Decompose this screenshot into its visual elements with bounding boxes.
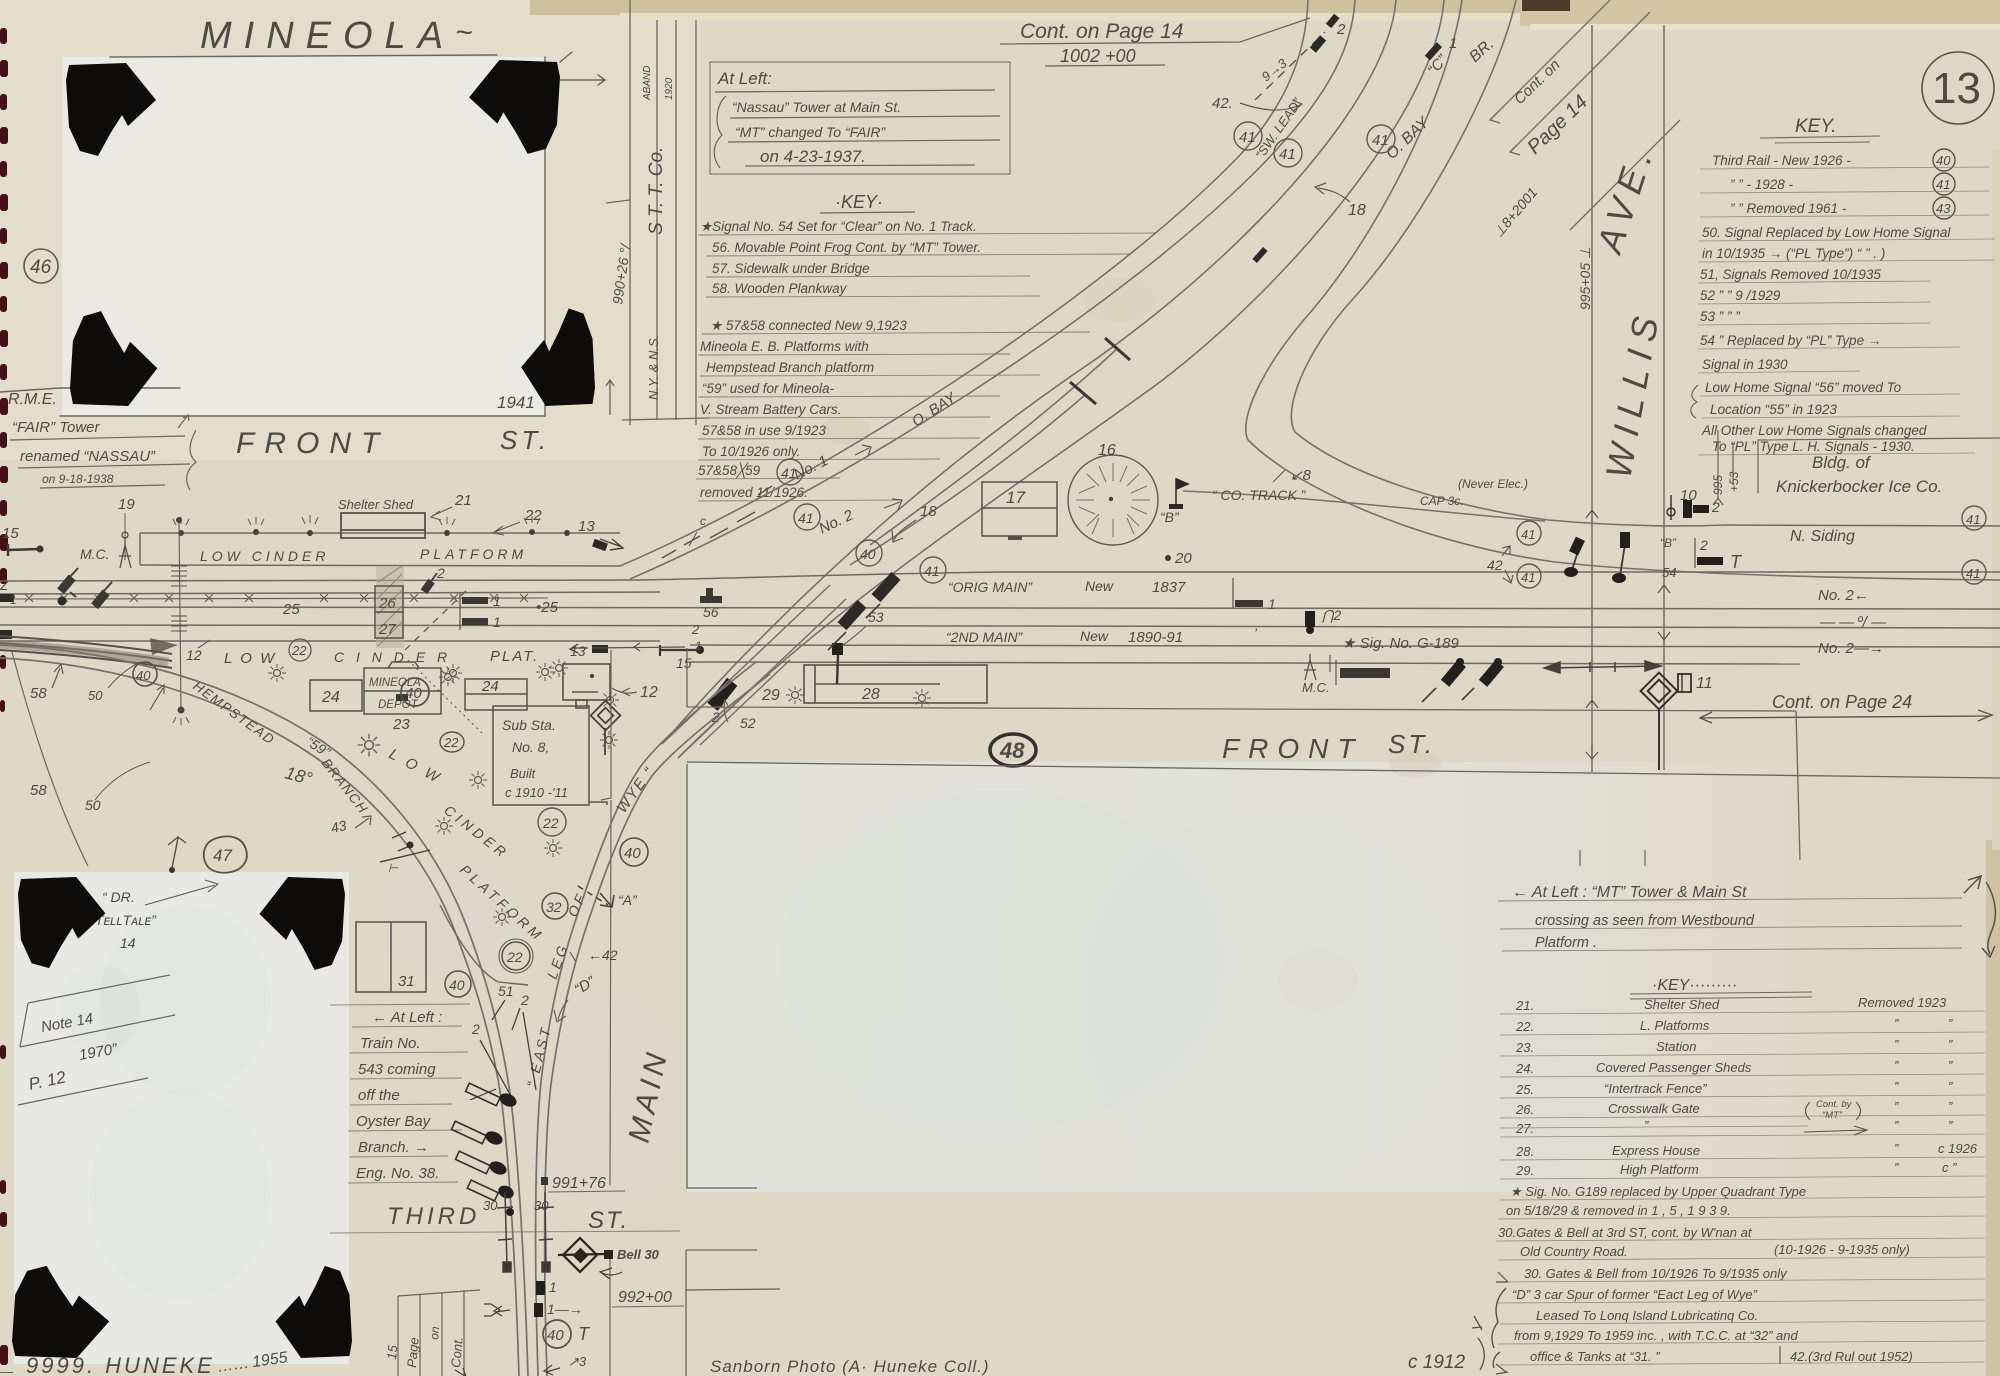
svg-text:58: 58 (30, 782, 47, 799)
svg-text:“ CO. TRACK ”: “ CO. TRACK ” (1212, 487, 1307, 503)
svg-text:⋂2: ⋂2 (1322, 607, 1341, 623)
svg-text:40: 40 (449, 977, 465, 993)
svg-text:LOW CINDER: LOW CINDER (200, 548, 329, 564)
svg-text:L O W: L O W (224, 650, 276, 667)
svg-text:↗3: ↗3 (568, 1354, 587, 1369)
svg-text:25.: 25. (1515, 1082, 1534, 1097)
svg-text:29: 29 (761, 687, 780, 704)
svg-text:Train No.: Train No. (360, 1035, 421, 1052)
svg-text:+53: +53 (1727, 471, 1741, 492)
svg-text:New: New (1085, 578, 1114, 594)
svg-text:No. 8,: No. 8, (512, 739, 549, 755)
svg-text:Location “55” in 1923: Location “55” in 1923 (1710, 402, 1837, 417)
svg-text:2: 2 (691, 622, 700, 637)
svg-text:off the: off the (358, 1087, 400, 1104)
svg-text:Bell 30: Bell 30 (617, 1247, 660, 1262)
svg-text:(Never Elec.): (Never Elec.) (1458, 477, 1528, 491)
svg-text:Covered Passenger Sheds: Covered Passenger Sheds (1596, 1060, 1752, 1075)
svg-text:Eng. No. 38.: Eng. No. 38. (356, 1165, 439, 1182)
svg-text:22: 22 (506, 949, 523, 965)
svg-text:”: ” (1948, 1058, 1953, 1073)
svg-text:1: 1 (493, 593, 501, 609)
svg-text:Signal in 1930: Signal in 1930 (1702, 357, 1788, 372)
svg-text:40: 40 (860, 546, 876, 562)
svg-text:MINEOLA: MINEOLA (200, 15, 455, 57)
svg-text:on 4-23-1937.: on 4-23-1937. (760, 147, 866, 166)
svg-text:40: 40 (405, 685, 422, 702)
svg-text:1941: 1941 (497, 393, 535, 412)
svg-text:office & Tanks at “31. ”: office & Tanks at “31. ” (1530, 1349, 1660, 1364)
svg-text:50. Signal Replaced by Low: 50. Signal Replaced by Low Home Signal (1702, 225, 1951, 240)
svg-text:32: 32 (546, 899, 562, 915)
svg-text:”: ” (1894, 1141, 1899, 1156)
svg-text:23: 23 (392, 716, 410, 733)
svg-text:2: 2 (1711, 499, 1720, 515)
svg-text:⊢: ⊢ (388, 861, 399, 875)
svg-text:56: 56 (703, 604, 719, 620)
svg-text:22: 22 (291, 643, 307, 658)
svg-text:“D” 3 car Spur of former “: “D” 3 car Spur of former “Eact Leg of Wy… (1512, 1287, 1758, 1302)
svg-text:“Intertrack Fence”: “Intertrack Fence” (1604, 1081, 1707, 1096)
svg-text:53 ” ”: 53 ” ” ” (1700, 309, 1740, 324)
svg-text:CAP 3c.: CAP 3c. (1420, 494, 1464, 508)
svg-text:58. Wooden Plankway: 58. Wooden Plankway (712, 281, 848, 296)
svg-text:43: 43 (1936, 201, 1951, 216)
svg-text:1837: 1837 (1152, 579, 1186, 596)
svg-text:★ Sig. No. G-189: ★ Sig. No. G-189 (1342, 635, 1459, 652)
svg-text:Crosswalk Gate: Crosswalk Gate (1608, 1101, 1700, 1116)
svg-text:1002 +00: 1002 +00 (1060, 46, 1136, 66)
svg-text:41: 41 (924, 563, 940, 579)
svg-text:9999. HUNEKE: 9999. HUNEKE (26, 1353, 215, 1376)
svg-text:←42: ←42 (588, 947, 618, 963)
svg-text:2: 2 (471, 1021, 480, 1037)
svg-text:”: ” (1894, 1079, 1899, 1094)
svg-text:·KEY·: ·KEY· (835, 192, 883, 212)
svg-text:1: 1 (1449, 35, 1457, 52)
svg-text:from 9,1929 To 1959 inc. ,: from 9,1929 To 1959 inc. , with T.C.C. a… (1514, 1328, 1799, 1343)
svg-text:— — º/ —: — — º/ — (1819, 614, 1887, 631)
svg-text:57&58 in use 9/1923: 57&58 in use 9/1923 (702, 423, 826, 438)
svg-text:14: 14 (120, 935, 136, 951)
svg-text:51: 51 (498, 983, 514, 999)
svg-text:removed 11/1926.: removed 11/1926. (700, 485, 808, 500)
svg-text:(10-1926 - 9-1935 only): (10-1926 - 9-1935 only) (1774, 1242, 1910, 1257)
svg-text:31: 31 (398, 973, 415, 990)
svg-text:53: 53 (868, 609, 884, 625)
svg-text:”: ” (1948, 1099, 1953, 1114)
svg-text:26: 26 (378, 595, 396, 612)
svg-text:Cont.: Cont. (448, 1336, 466, 1368)
svg-text:12: 12 (640, 684, 658, 701)
svg-text:Third Rail - New 1926 -: Third Rail - New 1926 - (1712, 153, 1851, 168)
svg-text:c: c (700, 514, 706, 528)
svg-text:Z: Z (0, 578, 9, 593)
svg-text:41: 41 (781, 465, 797, 481)
svg-text:Branch. →: Branch. → (358, 1139, 429, 1156)
svg-text:41: 41 (1521, 527, 1535, 542)
svg-text:995+05 ⊥: 995+05 ⊥ (1577, 247, 1593, 310)
svg-text:21: 21 (454, 492, 472, 509)
svg-text:51, Signals Removed: 51, Signals Removed 10/1935 (1700, 267, 1881, 282)
svg-text:c 1926: c 1926 (1938, 1141, 1978, 1156)
svg-text:42: 42 (1487, 557, 1503, 573)
svg-text:”: ” (1948, 1118, 1953, 1133)
svg-text:” ” - 1928 -: ” ” - 1928 - (1730, 177, 1794, 192)
svg-text:2: 2 (520, 992, 529, 1008)
svg-text:47: 47 (213, 846, 232, 865)
svg-text:”: ” (1894, 1037, 1899, 1052)
svg-text:41: 41 (1279, 146, 1296, 163)
svg-text:40: 40 (624, 845, 641, 862)
svg-text:40: 40 (136, 668, 151, 683)
svg-text:41: 41 (1966, 512, 1980, 527)
svg-text:ST.: ST. (500, 425, 550, 455)
svg-text:22: 22 (542, 815, 559, 831)
svg-text:At Left:: At Left: (717, 69, 772, 88)
svg-text:21.: 21. (1515, 998, 1534, 1013)
svg-text:25: 25 (282, 601, 300, 618)
svg-text:56. Movable Point Frog: 56. Movable Point Frog Cont. by “MT” Tow… (712, 240, 981, 255)
svg-text:1890-91: 1890-91 (1128, 629, 1183, 646)
svg-text:22: 22 (443, 735, 459, 750)
svg-text:★ Sig. No. G189 replaced by: ★ Sig. No. G189 replaced by Upper Quadra… (1510, 1184, 1806, 1199)
svg-text:“Nassau” Tower at Main St.: “Nassau” Tower at Main St. (732, 99, 901, 115)
svg-text:↙8: ↙8 (1290, 467, 1312, 484)
svg-text:26.: 26. (1515, 1102, 1534, 1117)
svg-text:Platform .: Platform . (1535, 935, 1597, 951)
svg-text:41: 41 (1372, 132, 1389, 149)
svg-text:30.Gates & Bell at 3rd ST,: 30.Gates & Bell at 3rd ST, cont. by W'na… (1498, 1225, 1753, 1240)
svg-text:“B”: “B” (1160, 509, 1180, 525)
svg-text:”: ” (1894, 1099, 1899, 1114)
svg-text:22.: 22. (1515, 1019, 1534, 1034)
svg-text:ST.: ST. (1388, 729, 1435, 759)
svg-text:—: — (0, 1364, 14, 1376)
svg-text:Oyster Bay: Oyster Bay (356, 1113, 432, 1130)
svg-text:c 1912: c 1912 (1408, 1352, 1465, 1373)
svg-text:2: 2 (1699, 537, 1708, 553)
svg-text:29.: 29. (1515, 1163, 1534, 1178)
svg-text:11: 11 (1696, 675, 1713, 692)
svg-text:“2ND MAIN”: “2ND MAIN” (946, 629, 1024, 645)
svg-text:41: 41 (1239, 129, 1256, 146)
svg-text:High Platform: High Platform (1620, 1162, 1699, 1177)
svg-text:2: 2 (1336, 21, 1346, 38)
svg-text:30: 30 (534, 1198, 549, 1213)
svg-text:PLAT.: PLAT. (490, 648, 539, 665)
svg-text:To “PL” Type L. H. Signals -: To “PL” Type L. H. Signals - 1930. (1712, 439, 1915, 454)
svg-text:24: 24 (481, 678, 499, 695)
svg-text:41: 41 (1966, 566, 1980, 581)
svg-text:30: 30 (483, 1198, 498, 1213)
svg-text:“ DR.: “ DR. (102, 889, 135, 905)
svg-text:50: 50 (85, 797, 101, 813)
svg-text:57. Sidewalk under Bridge: 57. Sidewalk under Bridge (712, 261, 870, 276)
svg-text:54: 54 (1662, 565, 1676, 580)
svg-text:543 coming: 543 coming (358, 1061, 436, 1078)
svg-text:c 1910 -'11: c 1910 -'11 (505, 785, 568, 800)
svg-text:N. Siding: N. Siding (1790, 528, 1855, 545)
svg-text:13: 13 (578, 518, 595, 535)
svg-text:2: 2 (436, 565, 445, 581)
svg-text:crossing as seen from: crossing as seen from Westbound (1535, 913, 1755, 929)
svg-text:Shelter Shed: Shelter Shed (338, 497, 414, 512)
svg-text:30. Gates & Bell from 10/1: 30. Gates & Bell from 10/1926 To 9/1935 … (1524, 1266, 1788, 1281)
svg-text:58: 58 (30, 685, 47, 702)
svg-text:48: 48 (999, 738, 1025, 763)
svg-text:~: ~ (455, 16, 473, 49)
svg-text:18: 18 (1348, 202, 1366, 219)
svg-text:41: 41 (1936, 177, 1950, 192)
svg-text:Sanborn Photo (A· Huneke Co: Sanborn Photo (A· Huneke Coll.) (710, 1357, 990, 1376)
svg-text:Cont. on Page 14: Cont. on Page 14 (1020, 20, 1183, 43)
svg-text:46: 46 (30, 257, 52, 278)
svg-text:ABAND: ABAND (642, 66, 653, 101)
svg-text:ST.: ST. (588, 1207, 629, 1234)
svg-text:Low Home Signal “56” moved To: Low Home Signal “56” moved To (1705, 380, 1902, 395)
svg-text:★Signal No. 54 Set for “C: ★Signal No. 54 Set for “Clear” on No. 1 … (700, 219, 977, 234)
svg-text:23.: 23. (1515, 1040, 1534, 1055)
svg-text:1920: 1920 (664, 77, 675, 100)
svg-text:40: 40 (1936, 153, 1951, 168)
svg-text:1: 1 (493, 614, 501, 630)
svg-text:Cont. by: Cont. by (1816, 1099, 1853, 1110)
svg-text:,: , (1255, 618, 1259, 633)
svg-text:41: 41 (798, 510, 814, 526)
svg-text:28: 28 (861, 686, 880, 703)
svg-text:Cont. on Page 24: Cont. on Page 24 (1772, 692, 1912, 712)
svg-text:”: ” (1948, 1037, 1953, 1052)
svg-text:on: on (427, 1325, 442, 1340)
svg-text:Bldg. of: Bldg. of (1812, 453, 1872, 472)
svg-text:”: ” (1894, 1160, 1899, 1175)
svg-text:22: 22 (524, 507, 542, 524)
svg-text:27: 27 (378, 621, 396, 638)
svg-text:16: 16 (1098, 442, 1116, 459)
svg-text:”: ” (1644, 1118, 1649, 1133)
svg-text:Hempstead Branch platform: Hempstead Branch platform (706, 360, 874, 375)
svg-text:13: 13 (1932, 64, 1981, 113)
svg-text:15: 15 (384, 1344, 400, 1360)
svg-text:KEY.: KEY. (1795, 116, 1837, 137)
svg-text:•25: •25 (536, 599, 559, 616)
svg-text:12: 12 (186, 647, 202, 663)
svg-text:TᴇʟʟTᴀʟᴇ”: TᴇʟʟTᴀʟᴇ” (95, 912, 157, 928)
svg-text:on 9-18-1938: on 9-18-1938 (42, 472, 114, 486)
svg-text:Page: Page (404, 1337, 422, 1369)
svg-text:41: 41 (1521, 570, 1535, 585)
svg-text:54 ” Replaced by: 54 ” Replaced by “PL” Type → (1700, 333, 1881, 348)
svg-text:No. 2←: No. 2← (1818, 587, 1869, 604)
svg-text:M.C.: M.C. (1302, 680, 1329, 695)
svg-text:24: 24 (321, 689, 340, 706)
svg-text:24.: 24. (1515, 1061, 1534, 1076)
svg-text:15: 15 (2, 525, 19, 542)
svg-text:Mineola E. B. Platforms w: Mineola E. B. Platforms with (700, 339, 869, 354)
svg-text:Shelter Shed: Shelter Shed (1644, 997, 1720, 1012)
svg-text:40: 40 (547, 1327, 564, 1344)
svg-text:Express House: Express House (1612, 1143, 1700, 1158)
svg-text:28.: 28. (1515, 1144, 1534, 1159)
svg-text:S T. T. Co.: S T. T. Co. (646, 147, 667, 235)
svg-text:27.: 27. (1515, 1121, 1534, 1136)
svg-text:Built: Built (510, 766, 537, 781)
svg-text:Old Country Road.: Old Country Road. (1520, 1244, 1628, 1259)
svg-text:“59” used for Mineola-: “59” used for Mineola- (702, 381, 835, 396)
svg-text:”: ” (1894, 1058, 1899, 1073)
svg-text:1: 1 (1268, 596, 1276, 612)
svg-text:on 5/18/29 & removed in 1 ,: on 5/18/29 & removed in 1 , 5 , 1 9 3 9. (1506, 1203, 1731, 1218)
svg-text:992+00: 992+00 (618, 1289, 672, 1306)
svg-text:All Other Low Home Signals cha: All Other Low Home Signals changed (1701, 423, 1927, 438)
svg-text:”: ” (1894, 1118, 1899, 1133)
svg-text:FRONT: FRONT (236, 427, 389, 460)
svg-text:Leased To Lonq Island L: Leased To Lonq Island Lubricatinq Co. (1536, 1308, 1758, 1323)
svg-text:57&58╳59: 57&58╳59 (698, 462, 761, 479)
svg-text:“ORIG MAIN”: “ORIG MAIN” (948, 579, 1033, 595)
svg-text:” ” Removed 1961 -: ” ” Removed 1961 - (1730, 201, 1847, 216)
svg-text:“A”: “A” (618, 892, 638, 908)
svg-text:“MT” changed To “FAIR”: “MT” changed To “FAIR” (735, 124, 886, 140)
svg-text:15: 15 (676, 655, 692, 671)
svg-text:Sub Sta.: Sub Sta. (502, 717, 556, 733)
svg-text:M.C.: M.C. (80, 546, 110, 562)
svg-text:To 10/1926 only.: To 10/1926 only. (702, 444, 800, 459)
svg-text:★ 57&58 connected New 9,: ★ 57&58 connected New 9,1923 (710, 318, 907, 333)
svg-text:·KEY·········: ·KEY········· (1652, 977, 1737, 994)
svg-text:New: New (1080, 628, 1109, 644)
svg-text:V. Stream Battery Cars.: V. Stream Battery Cars. (700, 402, 842, 417)
svg-text:13: 13 (570, 643, 586, 659)
svg-text:“FAIR” Tower: “FAIR” Tower (12, 419, 101, 436)
svg-text:Removed 1923: Removed 1923 (1858, 995, 1947, 1010)
svg-text:in 10/1935 → (“PL Type”) “: in 10/1935 → (“PL Type”) “ ” . ) (1702, 246, 1885, 261)
svg-text:20: 20 (1174, 550, 1192, 567)
svg-text:42.: 42. (1212, 95, 1233, 112)
svg-text:Station: Station (1656, 1039, 1696, 1054)
svg-text:42.(3rd Rul out 1952): 42.(3rd Rul out 1952) (1790, 1349, 1913, 1364)
svg-text:1: 1 (695, 639, 702, 653)
svg-text:1: 1 (549, 1279, 557, 1295)
svg-text:19: 19 (118, 496, 135, 513)
svg-text:“B”: “B” (1660, 536, 1677, 550)
svg-text:← At Left :: ← At Left : (372, 1009, 442, 1026)
svg-text:52 ” ”: 52 ” ” 9 /1929 (1700, 288, 1781, 303)
svg-text:991+76: 991+76 (552, 1175, 606, 1192)
svg-text:”: ” (1894, 1016, 1899, 1031)
svg-text:1—→: 1—→ (547, 1301, 583, 1317)
svg-text:No. 2—→: No. 2—→ (1818, 640, 1884, 657)
svg-text:FRONT: FRONT (1222, 733, 1363, 764)
svg-text:Knickerbocker Ice Co.: Knickerbocker Ice Co. (1776, 477, 1942, 496)
svg-text:”: ” (1948, 1016, 1953, 1031)
svg-text:50: 50 (88, 688, 103, 703)
svg-text:18: 18 (920, 503, 937, 520)
svg-text:R.M.E.: R.M.E. (8, 391, 57, 408)
svg-text:THIRD: THIRD (387, 1203, 480, 1230)
svg-text:52: 52 (740, 715, 756, 731)
svg-text:PLATFORM: PLATFORM (420, 546, 527, 562)
svg-text:”: ” (1948, 1079, 1953, 1094)
svg-text:renamed “NASSAU”: renamed “NASSAU” (20, 448, 156, 465)
svg-text:← At Left : “MT” Tower & Main: ← At Left : “MT” Tower & Main St (1512, 884, 1747, 901)
svg-text:N.Y. & N.S.: N.Y. & N.S. (646, 335, 661, 400)
svg-text:c ”: c ” (1942, 1160, 1957, 1175)
svg-text:1: 1 (10, 593, 17, 607)
svg-text:L. Platforms: L. Platforms (1640, 1018, 1710, 1033)
svg-text:17: 17 (1006, 488, 1025, 507)
